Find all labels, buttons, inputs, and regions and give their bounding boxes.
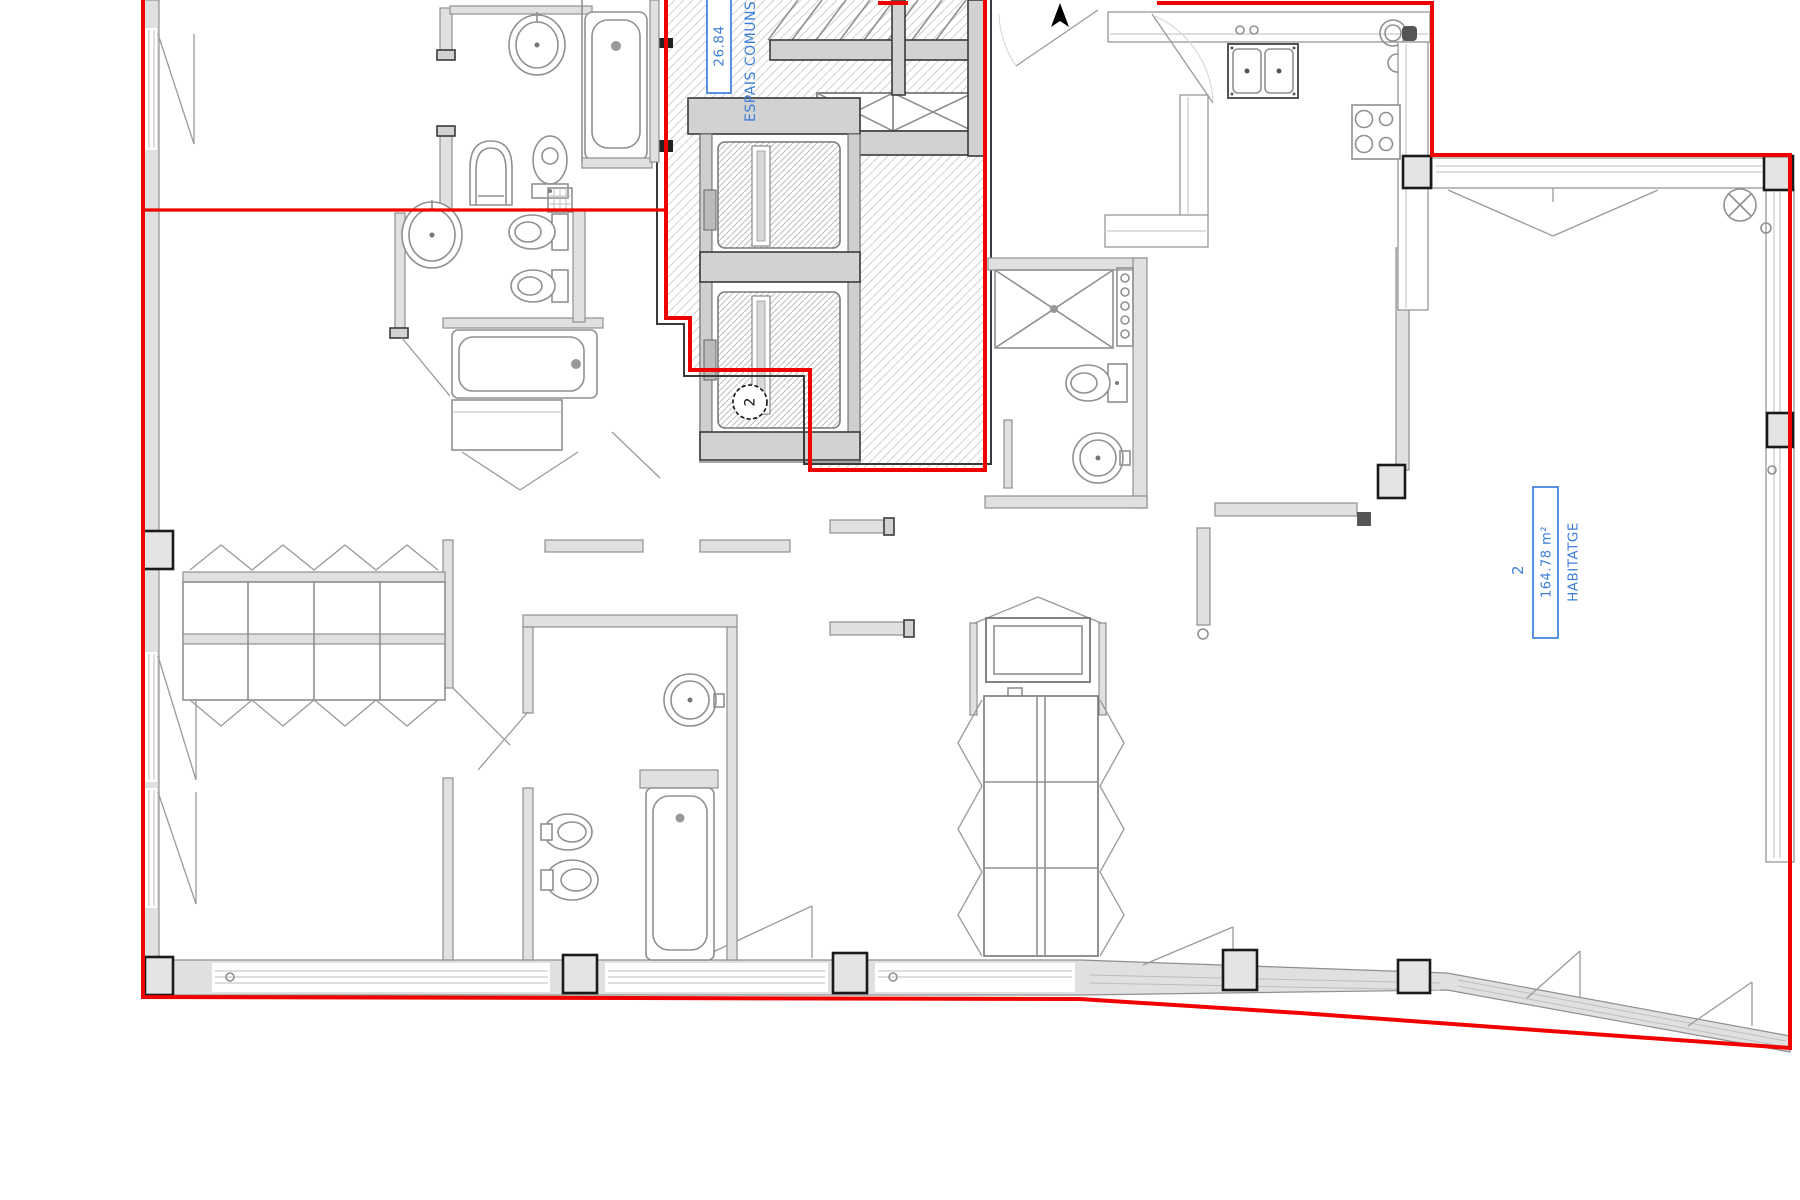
common-area-value: 26.84 <box>712 25 728 66</box>
entry <box>999 3 1098 66</box>
sink <box>664 674 724 726</box>
toilet <box>509 214 568 250</box>
kitchen-peninsula <box>1180 95 1208 217</box>
bidet <box>470 141 512 205</box>
wall-cap <box>390 328 408 338</box>
bathroom-wall <box>727 627 737 960</box>
bathroom-wall <box>523 615 737 627</box>
partition-wall <box>545 540 643 552</box>
window <box>145 788 196 908</box>
partition-wall <box>443 778 453 960</box>
floor-plan-canvas: 26.84 ESPAIS COMUNS 2 164.78 m² HABITATG… <box>0 0 1800 1200</box>
bidet <box>511 270 568 302</box>
wardrobe-left <box>183 545 445 726</box>
bathtub <box>582 0 652 168</box>
unit-area-value: 164.78 m² <box>1540 526 1555 598</box>
wardrobe-center <box>958 597 1124 956</box>
bathroom-wall <box>1133 258 1147 508</box>
column <box>143 531 173 569</box>
bathroom-wall <box>1004 420 1012 488</box>
elevator-car <box>704 142 840 248</box>
column <box>1223 950 1257 990</box>
core-wall <box>968 0 985 156</box>
bidet <box>541 814 592 850</box>
kitchen <box>1105 12 1430 310</box>
core-wall <box>892 0 905 95</box>
sink <box>509 12 565 75</box>
wall-cap <box>904 620 914 637</box>
column <box>833 953 867 993</box>
bathroom-bottom-middle <box>541 674 724 960</box>
unit-area-label: 2 164.78 m² HABITATGE <box>1509 487 1582 638</box>
window-wall-top-right <box>1432 158 1765 236</box>
partition-wall <box>830 520 888 533</box>
sink <box>1073 433 1130 483</box>
window <box>875 963 1075 992</box>
column <box>1403 156 1431 188</box>
floor-plan-page: 26.84 ESPAIS COMUNS 2 164.78 m² HABITATG… <box>0 0 1800 1200</box>
bathroom-wall <box>523 788 533 960</box>
window <box>212 963 550 992</box>
circle-cross-icon <box>1724 189 1771 233</box>
door-stop <box>1357 512 1371 526</box>
elevator-shaft <box>688 98 860 462</box>
column <box>1398 960 1430 993</box>
radiator <box>1117 268 1133 346</box>
bathroom-upper-middle <box>402 200 597 490</box>
partition-wall <box>1215 503 1357 516</box>
partition-wall <box>700 540 790 552</box>
common-area-name: ESPAIS COMUNS <box>743 1 759 122</box>
partition-wall <box>1197 528 1210 625</box>
bathtub <box>640 770 718 960</box>
bathroom-wall <box>523 627 533 713</box>
wall-cap <box>884 518 894 535</box>
column <box>145 957 173 995</box>
bathroom-wall <box>985 496 1147 508</box>
toilet <box>541 860 598 900</box>
entrance-arrow-icon <box>1051 3 1069 27</box>
column <box>1378 465 1405 498</box>
unit-number: 2 <box>1509 565 1527 575</box>
window <box>605 963 828 992</box>
bathroom-core-right <box>995 268 1133 483</box>
toilet <box>1066 364 1127 402</box>
bathroom-top-left <box>437 0 659 212</box>
unit-name: HABITATGE <box>1566 522 1582 602</box>
bathtub <box>452 330 597 398</box>
window <box>145 28 194 150</box>
shower-cabinet <box>452 400 578 490</box>
column <box>563 955 597 993</box>
cooktop <box>1352 105 1400 159</box>
partition-wall <box>830 622 908 635</box>
door-marker-number: 2 <box>743 398 759 407</box>
door-marker: 2 <box>733 385 767 419</box>
partition-wall <box>573 210 585 322</box>
elevator-car <box>704 292 840 428</box>
door-stop <box>1198 629 1208 639</box>
shower-tray <box>995 270 1113 348</box>
faucet <box>1402 26 1417 41</box>
